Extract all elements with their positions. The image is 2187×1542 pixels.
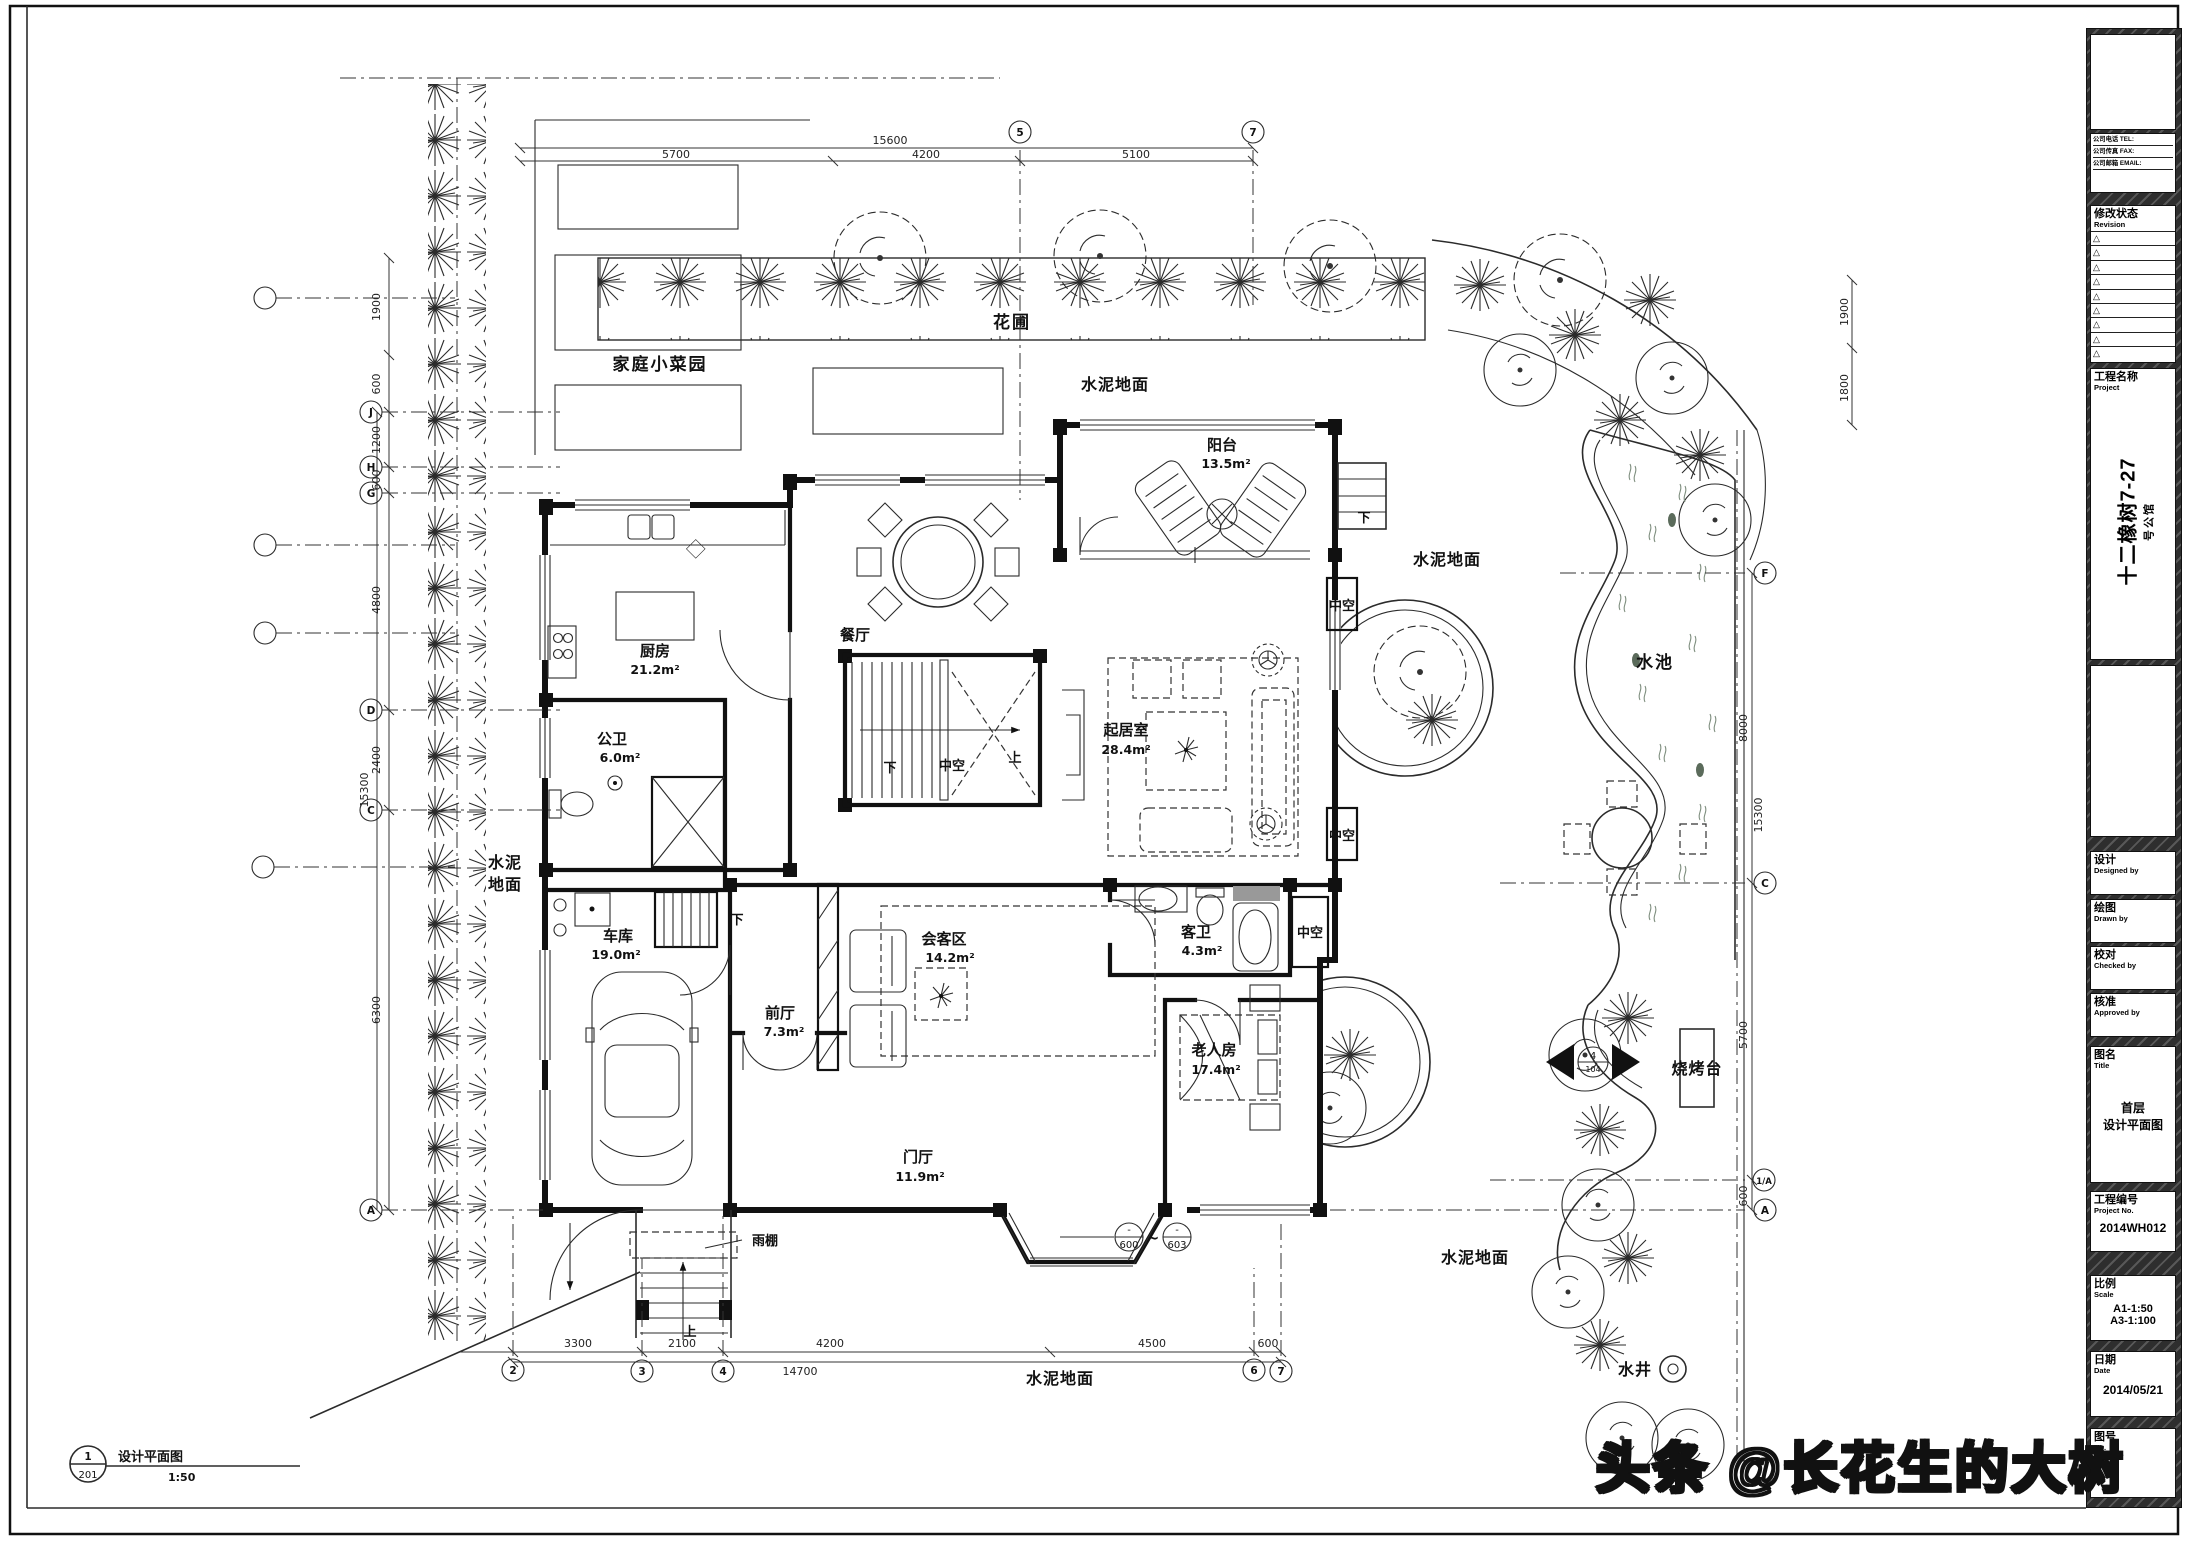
room-label-balcony: 阳台: [1207, 436, 1237, 454]
room-area-public-bath: 6.0m²: [600, 750, 641, 765]
left-hedge: [428, 84, 486, 1340]
room-area-elder: 17.4m²: [1191, 1062, 1240, 1077]
svg-text:600: 600: [1258, 1337, 1279, 1350]
svg-text:2: 2: [509, 1365, 516, 1377]
room-area-kitchen: 21.2m²: [630, 662, 679, 677]
svg-text:1200: 1200: [370, 426, 383, 454]
view-title: 1 201 设计平面图 1:50: [70, 1446, 300, 1484]
svg-text:4800: 4800: [370, 586, 383, 614]
void-label-3: 中空: [1297, 925, 1323, 941]
svg-text:5: 5: [1016, 127, 1023, 139]
tb-date-value: 2014/05/21: [2094, 1383, 2172, 1397]
room-label-elder: 老人房: [1190, 1041, 1236, 1059]
tb-checked-box: 校对 Checked by: [2090, 946, 2176, 990]
svg-text:4500: 4500: [1138, 1337, 1166, 1350]
room-label-public-bath: 公卫: [597, 730, 627, 748]
svg-text:14700: 14700: [783, 1365, 818, 1378]
tb-project-no-value: 2014WH012: [2094, 1221, 2172, 1235]
tb-approved-box: 核准 Approved by: [2090, 993, 2176, 1037]
svg-text:2100: 2100: [668, 1337, 696, 1350]
room-area-guest-bath: 4.3m²: [1182, 943, 1223, 958]
room-area-garage: 19.0m²: [591, 947, 640, 962]
void-label-2: 中空: [1329, 828, 1355, 844]
pond: [1575, 430, 1735, 1005]
tb-project-box: 工程名称 Project 十二橡树7-27 号公馆: [2090, 368, 2176, 660]
svg-text:2400: 2400: [370, 746, 383, 774]
down-label-stair: 下: [883, 761, 896, 776]
cement-label-left-1: 水泥: [488, 853, 522, 872]
svg-text:6: 6: [1250, 1365, 1257, 1377]
svg-text:4200: 4200: [816, 1337, 844, 1350]
svg-text:设计平面图: 设计平面图: [118, 1449, 183, 1465]
svg-text:600: 600: [1737, 1186, 1750, 1207]
svg-text:15300: 15300: [1752, 798, 1765, 833]
svg-text:104: 104: [1585, 1065, 1600, 1074]
up-label-stair: 上: [1008, 751, 1021, 766]
down-label-garage: 下: [730, 913, 743, 928]
tb-project-name: 十二橡树7-27: [2112, 417, 2141, 627]
pond-label: 水池: [1636, 652, 1674, 673]
svg-text:600: 600: [1119, 1240, 1138, 1251]
corner-garden: [1432, 234, 1765, 560]
tb-drawn-box: 绘图 Drawn by: [2090, 899, 2176, 943]
svg-text:-: -: [1127, 1225, 1131, 1236]
well-label: 水井: [1618, 1360, 1652, 1379]
svg-text:4: 4: [1590, 1051, 1596, 1062]
room-label-kitchen: 厨房: [640, 642, 670, 660]
tb-logo-box: [2090, 34, 2176, 130]
svg-text:15600: 15600: [873, 134, 908, 147]
floor-plan-svg: 厨房 21.2m² 公卫 6.0m² 餐厅 阳台 13.5m² 起居室 28.4…: [0, 0, 2187, 1542]
room-area-living: 28.4m²: [1101, 742, 1150, 757]
svg-text:1/A: 1/A: [1756, 1177, 1772, 1187]
down-label-balcony: 下: [1357, 511, 1370, 526]
tb-sheet-title-line2: 设计平面图: [2103, 1116, 2163, 1133]
room-label-reception: 会客区: [921, 930, 966, 948]
svg-text:5700: 5700: [1737, 1021, 1750, 1049]
entrance-steps: [630, 1210, 742, 1340]
cement-label-bc: 水泥地面: [1026, 1369, 1094, 1388]
svg-text:F: F: [1761, 568, 1768, 580]
svg-text:A: A: [367, 1205, 376, 1217]
tb-date-box: 日期 Date 2014/05/21: [2090, 1351, 2176, 1417]
tb-designed-box: 设计 Designed by: [2090, 851, 2176, 895]
room-label-garage: 车库: [603, 927, 633, 945]
bbq-label: 烧烤台: [1671, 1059, 1722, 1078]
room-label-guest-bath: 客卫: [1180, 923, 1211, 941]
svg-text:A: A: [1761, 1205, 1770, 1217]
svg-text:7: 7: [1249, 127, 1256, 139]
svg-text:C: C: [1761, 878, 1769, 890]
svg-text:4: 4: [719, 1366, 726, 1378]
svg-text:-: -: [1175, 1225, 1179, 1236]
svg-text:3: 3: [638, 1366, 645, 1378]
tb-revision-cn: 修改状态: [2094, 208, 2172, 220]
tb-contact-tel: 公司电话 TEL:: [2093, 134, 2173, 145]
svg-text:1: 1: [84, 1451, 91, 1463]
void-label-stair: 中空: [939, 758, 965, 774]
svg-text:15300: 15300: [358, 773, 371, 808]
cement-label-top: 水泥地面: [1081, 375, 1149, 394]
tb-contact-fax: 公司传真 FAX:: [2093, 145, 2173, 157]
tb-revision-box: 修改状态 Revision △△△ △△△ △△△: [2090, 205, 2176, 363]
house: 厨房 21.2m² 公卫 6.0m² 餐厅 阳台 13.5m² 起居室 28.4…: [539, 419, 1386, 1340]
tb-sheet-title-line1: 首层: [2121, 1099, 2145, 1116]
svg-text:600: 600: [370, 374, 383, 395]
svg-text:5100: 5100: [1122, 148, 1150, 161]
svg-text:J: J: [368, 407, 373, 419]
tb-scale-line2: A3-1:100: [2094, 1315, 2172, 1327]
svg-text:7: 7: [1277, 1366, 1284, 1378]
room-label-front-hall: 前厅: [765, 1004, 795, 1022]
room-label-foyer: 门厅: [903, 1148, 933, 1166]
svg-text:1900: 1900: [370, 293, 383, 321]
cement-label-right: 水泥地面: [1413, 550, 1481, 569]
svg-text:1900: 1900: [1838, 298, 1851, 326]
well-symbol: [1660, 1356, 1686, 1382]
room-label-living: 起居室: [1102, 721, 1148, 739]
room-label-dining: 餐厅: [840, 626, 870, 644]
drawing-sheet: 厨房 21.2m² 公卫 6.0m² 餐厅 阳台 13.5m² 起居室 28.4…: [0, 0, 2187, 1542]
tb-sheet-title-box: 图名 Title 首层 设计平面图: [2090, 1046, 2176, 1183]
svg-text:1800: 1800: [1838, 374, 1851, 402]
tb-contact-box: 公司电话 TEL: 公司传真 FAX: 公司邮箱 EMAIL:: [2090, 133, 2176, 193]
watermark: 头条 @长花生的大树: [1596, 1424, 2126, 1503]
tb-contact-email: 公司邮箱 EMAIL:: [2093, 157, 2173, 169]
svg-text:C: C: [367, 805, 375, 817]
svg-text:H: H: [367, 462, 376, 474]
svg-text:G: G: [367, 488, 376, 500]
svg-text:6300: 6300: [370, 996, 383, 1024]
svg-text:1:50: 1:50: [168, 1471, 196, 1484]
tb-scale-line1: A1-1:50: [2094, 1303, 2172, 1315]
canopy-label: 雨棚: [752, 1233, 778, 1249]
svg-text:3300: 3300: [564, 1337, 592, 1350]
tb-project-no-box: 工程编号 Project No. 2014WH012: [2090, 1191, 2176, 1252]
tb-project-subtitle: 号公馆: [2141, 417, 2157, 627]
veg-garden-label: 家庭小菜园: [613, 354, 708, 375]
tb-project-cn: 工程名称: [2094, 371, 2172, 383]
svg-text:D: D: [367, 705, 376, 717]
room-area-reception: 14.2m²: [925, 950, 974, 965]
cement-label-br: 水泥地面: [1441, 1248, 1509, 1267]
svg-text:603: 603: [1167, 1240, 1186, 1251]
svg-text:5700: 5700: [662, 148, 690, 161]
room-area-balcony: 13.5m²: [1201, 456, 1250, 471]
svg-text:8000: 8000: [1737, 714, 1750, 742]
void-label-1: 中空: [1329, 598, 1355, 614]
tb-scale-box: 比例 Scale A1-1:50 A3-1:100: [2090, 1275, 2176, 1341]
tb-revision-en: Revision: [2094, 220, 2172, 229]
tb-blank-box: [2090, 665, 2176, 837]
svg-text:4200: 4200: [912, 148, 940, 161]
room-area-foyer: 11.9m²: [895, 1169, 944, 1184]
tb-project-en: Project: [2094, 383, 2172, 392]
svg-text:201: 201: [78, 1470, 97, 1481]
flower-bed-label: 花圃: [993, 312, 1031, 333]
room-area-front-hall: 7.3m²: [764, 1024, 805, 1039]
cement-label-left-2: 地面: [488, 875, 522, 894]
svg-text:~: ~: [1147, 1229, 1160, 1247]
